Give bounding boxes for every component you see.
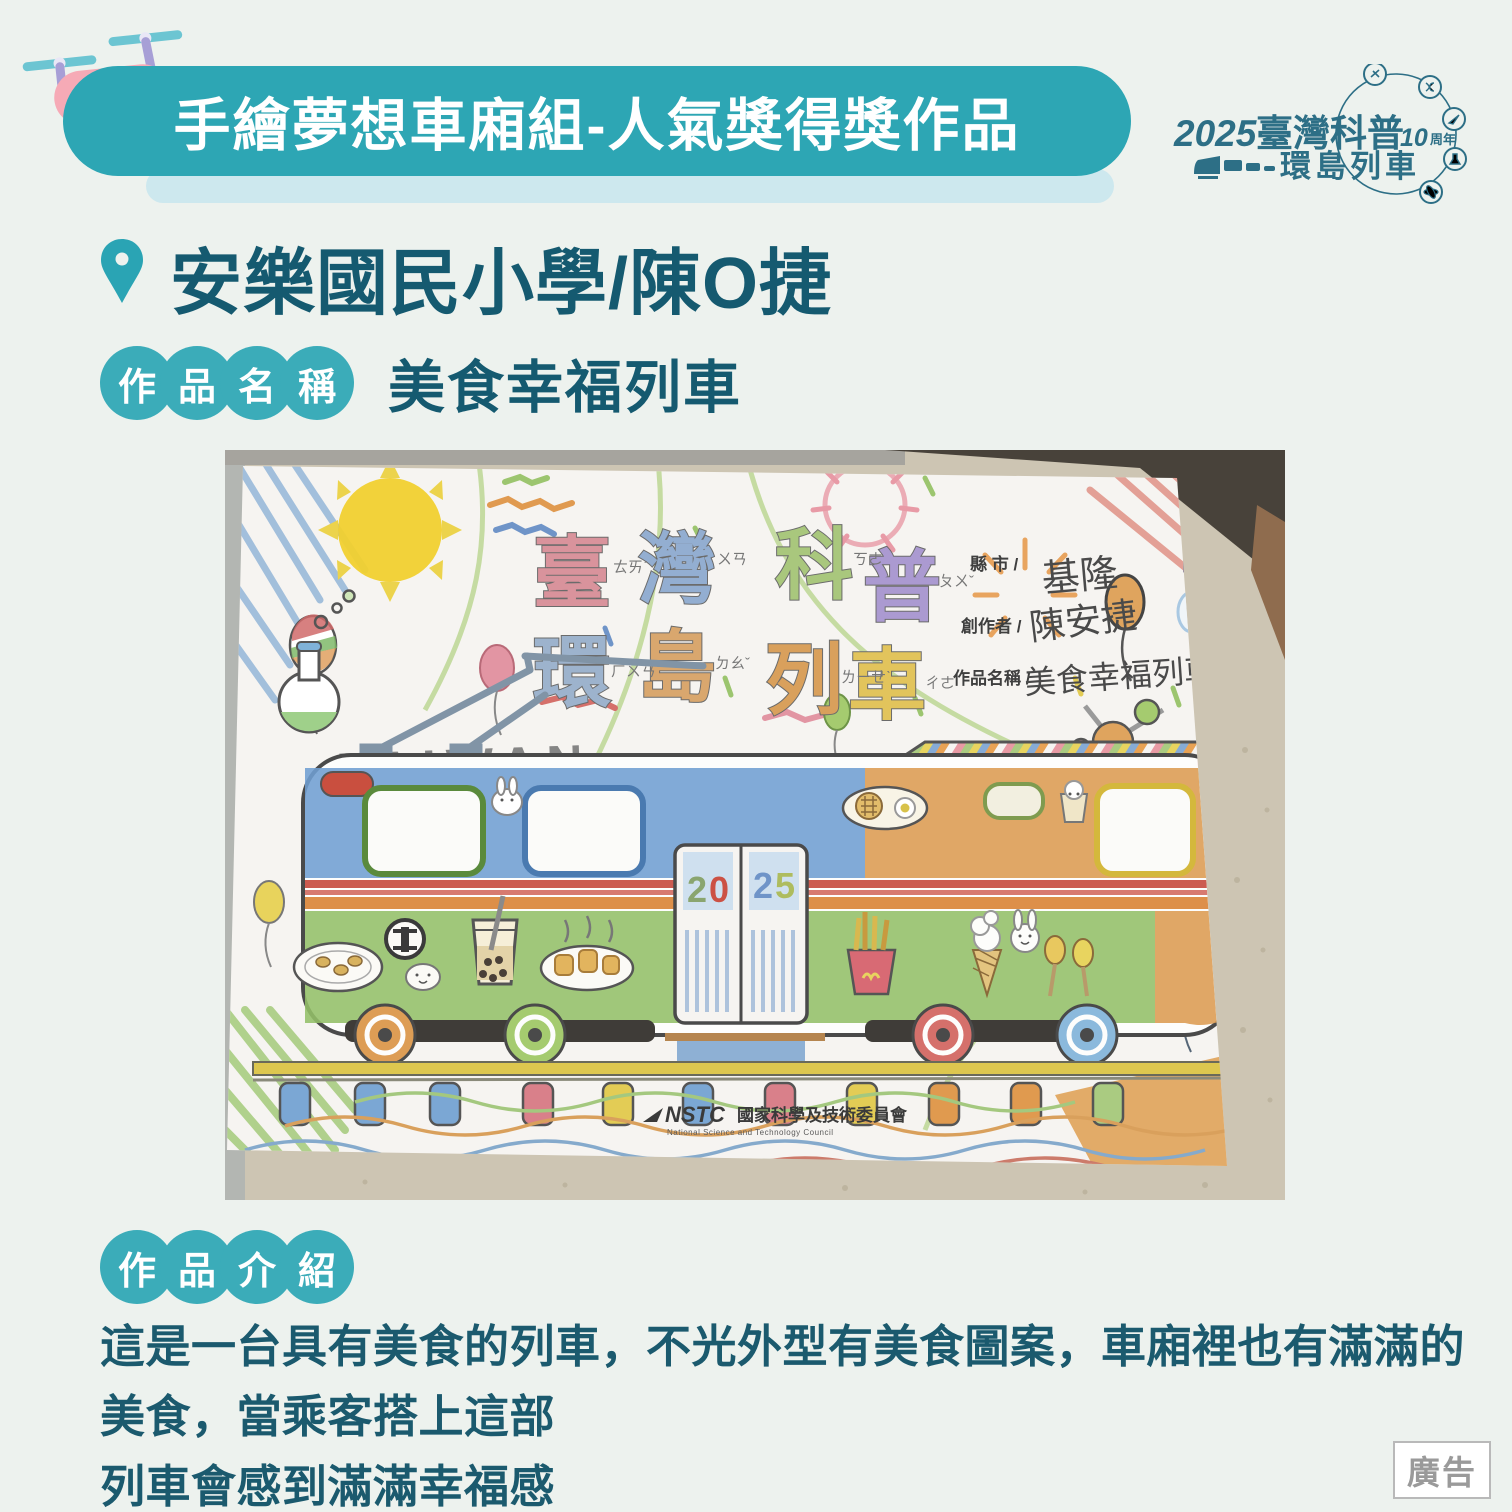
svg-text:ㄔㄜ: ㄔㄜ <box>925 675 955 692</box>
train-doors: 2 0 2 5 <box>675 845 807 1023</box>
intro-line-1: 這是一台具有美食的列車，不光外型有美食圖案，車廂裡也有滿滿的美食，當乘客搭上這部 <box>100 1312 1480 1452</box>
work-name-value: 美食幸福列車 <box>388 342 742 424</box>
banner-title: 手繪夢想車廂組-人氣獎得獎作品 <box>174 80 1021 162</box>
waffle-egg-plate <box>843 787 927 829</box>
school-author-text: 安樂國民小學/陳O捷 <box>170 224 832 329</box>
work-intro-badge: 作 品 介 紹 <box>100 1230 354 1304</box>
svg-text:灣: 灣 <box>638 525 716 613</box>
svg-text:作品名稱 /: 作品名稱 / <box>953 668 1031 688</box>
svg-text:NSTC: NSTC <box>665 1102 726 1127</box>
svg-text:環: 環 <box>533 629 611 717</box>
artwork-photo: TAIWAN 臺 灣 科 普 環 島 列 車 ㄊㄞˊ ㄨㄢ ㄎㄜ ㄆㄨˇ ㄏㄨㄢ… <box>225 450 1285 1200</box>
work-intro-row: 作 品 介 紹 <box>100 1230 354 1304</box>
logo-train-icon <box>1194 156 1275 179</box>
svg-text:2: 2 <box>687 869 707 910</box>
logo-year: 2025 <box>1173 113 1258 154</box>
svg-text:國家科學及技術委員會: 國家科學及技術委員會 <box>737 1105 908 1125</box>
svg-text:ㄌㄧㄝˋ: ㄌㄧㄝˋ <box>841 669 891 686</box>
svg-text:ㄆㄨˇ: ㄆㄨˇ <box>939 573 974 590</box>
work-name-row: 作 品 名 稱 美食幸福列車 <box>100 342 742 424</box>
svg-text:ㄉㄠˇ: ㄉㄠˇ <box>715 655 750 672</box>
svg-text:National Science and Technolog: National Science and Technology Council <box>667 1128 834 1137</box>
svg-text:ㄨㄢ: ㄨㄢ <box>717 551 747 568</box>
logo-subtitle: 環島列車 <box>1280 149 1420 184</box>
work-intro-paragraph: 這是一台具有美食的列車，不光外型有美食圖案，車廂裡也有滿滿的美食，當乘客搭上這部… <box>100 1312 1480 1512</box>
train-drawing: 2 0 2 5 <box>294 755 1258 1065</box>
small-window <box>985 784 1043 818</box>
intro-line-2: 列車會感到滿滿幸福感 <box>100 1452 1480 1512</box>
svg-text:5: 5 <box>775 865 795 906</box>
svg-text:科: 科 <box>775 521 853 609</box>
svg-text:2: 2 <box>753 865 773 906</box>
logo-anniversary-unit: 周年 <box>1430 132 1456 147</box>
svg-text:臺: 臺 <box>533 529 611 617</box>
award-category-banner: 手繪夢想車廂組-人氣獎得獎作品 <box>63 66 1131 176</box>
svg-text:列: 列 <box>765 636 843 724</box>
svg-text:縣 市 /: 縣 市 / <box>970 554 1018 574</box>
event-logo: 2025 臺灣科普 10 周年 環島列車 <box>1168 64 1478 214</box>
svg-text:ㄎㄜ: ㄎㄜ <box>853 551 883 568</box>
location-pin-icon <box>100 237 144 317</box>
work-name-badge: 作 品 名 稱 <box>100 346 354 420</box>
ad-label-box: 廣告 <box>1393 1441 1491 1499</box>
icecream-cup-sticker <box>1061 781 1087 822</box>
logo-title: 臺灣科普 <box>1256 113 1404 154</box>
winner-row: 安樂國民小學/陳O捷 <box>100 224 832 329</box>
logo-anniversary-number: 10 <box>1400 124 1428 152</box>
svg-text:創作者 /: 創作者 / <box>960 616 1022 636</box>
badge-char: 稱 <box>280 346 354 420</box>
poster-page: 手繪夢想車廂組-人氣獎得獎作品 2025 臺灣科普 10 周年 環島列車 <box>0 0 1512 1512</box>
destination-sign <box>321 772 373 796</box>
svg-text:0: 0 <box>709 869 729 910</box>
svg-text:ㄊㄞˊ: ㄊㄞˊ <box>613 559 648 576</box>
badge-char: 紹 <box>280 1230 354 1304</box>
ad-label-text: 廣告 <box>1407 1446 1477 1494</box>
county-handwriting: 基隆 <box>1040 553 1119 601</box>
